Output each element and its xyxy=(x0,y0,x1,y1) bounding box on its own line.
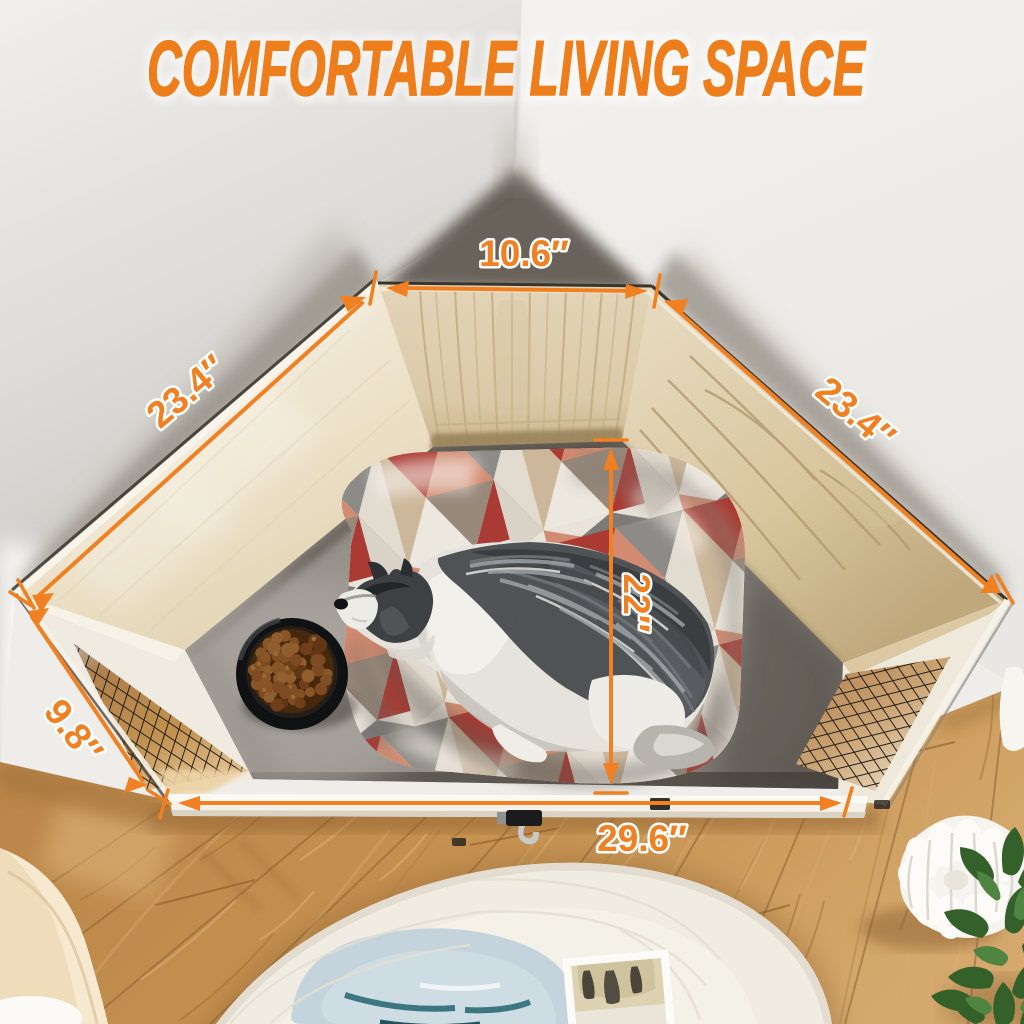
svg-text:10.6″: 10.6″ xyxy=(479,233,569,274)
svg-text:COMFORTABLE LIVING SPACE: COMFORTABLE LIVING SPACE xyxy=(147,24,866,112)
svg-text:22″: 22″ xyxy=(616,574,657,633)
svg-text:29.6″: 29.6″ xyxy=(597,818,687,859)
